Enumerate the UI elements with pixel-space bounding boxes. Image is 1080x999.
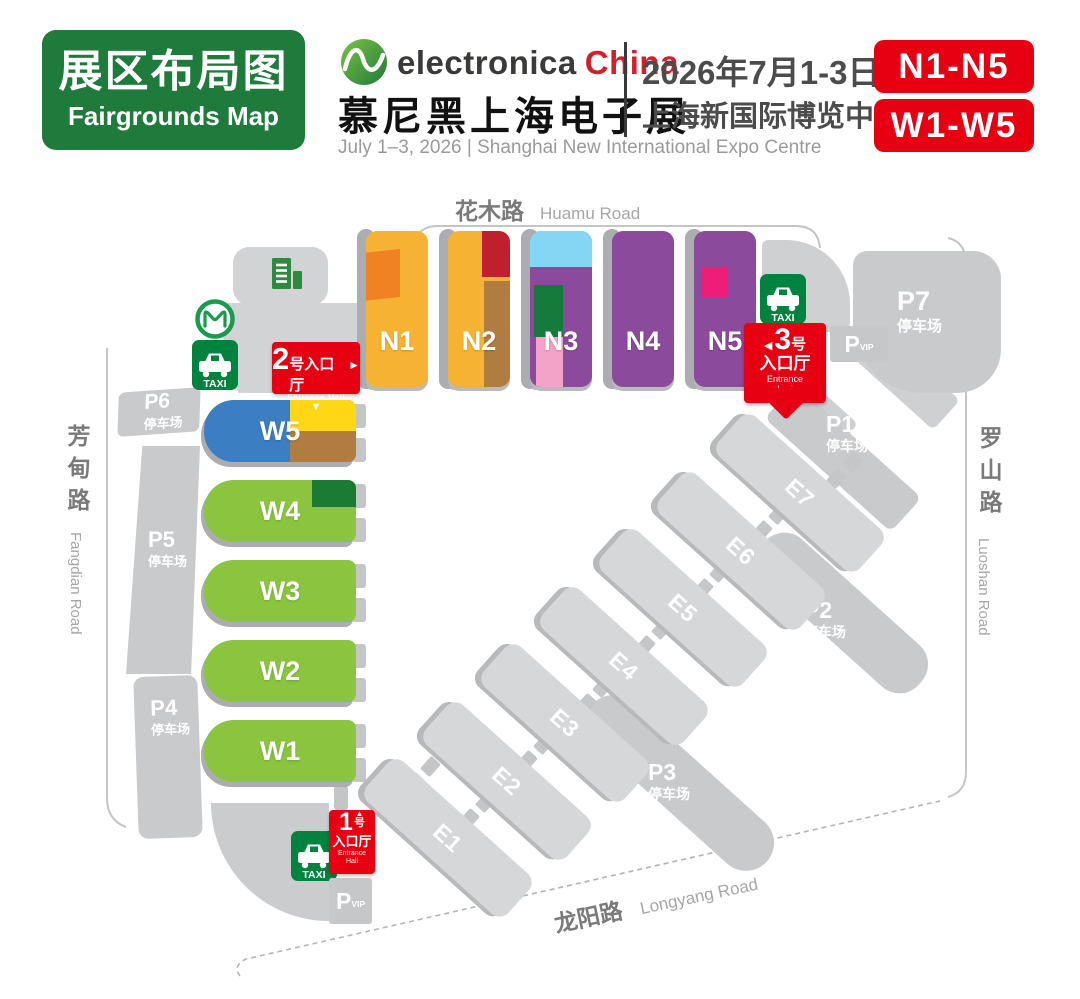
entrance3-hao: 号	[791, 333, 806, 354]
p6-sub: 停车场	[143, 411, 183, 433]
hall-w5-label: W5	[204, 416, 356, 447]
entrance1-en2: Hall	[346, 858, 358, 866]
n1-color-patch	[366, 249, 400, 301]
hall-e1-label: E1	[428, 818, 468, 858]
hall-e2-label: E2	[487, 761, 527, 801]
n3-color-patch-blue	[530, 231, 592, 267]
p5-name: P5	[148, 528, 187, 551]
metro-icon	[194, 298, 236, 340]
hall-n2-label: N2	[448, 326, 510, 357]
hall-w2-label: W2	[204, 656, 356, 687]
entrance1-lobby: 入口厅	[332, 835, 371, 850]
hall-w4-label: W4	[204, 496, 356, 527]
hall-w2: W2	[204, 640, 356, 702]
p4-name: P4	[150, 695, 190, 719]
hall-w5: W5	[204, 400, 356, 462]
fangdian-road-cn: 芳甸路	[60, 424, 94, 520]
hall-e7-label: E7	[780, 473, 820, 513]
entrance2-label: 号入口厅	[289, 353, 346, 395]
fairgrounds-map-page: 展区布局图 Fairgrounds Map electronicaChina 慕…	[0, 0, 1080, 999]
hall-e6-label: E6	[721, 531, 761, 571]
p5-sub: 停车场	[148, 551, 187, 570]
vip-parking-sign: PVIP	[830, 326, 888, 362]
road-label-huamu: 花木路 Huamu Road	[455, 192, 640, 226]
entrance1-hao: 号	[354, 818, 365, 829]
entrance1-en1: Entrance	[338, 850, 366, 858]
p7-sub: 停车场	[897, 315, 942, 336]
hall-n3-label: N3	[530, 326, 592, 357]
taxi-icon: TAXI	[760, 274, 806, 324]
hall-w4: W4	[204, 480, 356, 542]
taxi-icon: TAXI	[192, 340, 238, 390]
p6-name: P6	[144, 389, 184, 414]
arrow-right-icon: ►	[348, 358, 360, 372]
parking-p6: P6 停车场	[117, 387, 200, 437]
fangdian-road-en: Fangdian Road	[67, 532, 84, 635]
hall-n4-label: N4	[612, 326, 674, 357]
hall-w1: W1	[204, 720, 356, 782]
hall-e3-label: E3	[545, 703, 585, 743]
hall-e4-label: E4	[604, 646, 644, 686]
entrance-hall-2-sign: 2 号入口厅 ► Entrance Hall ▼	[272, 342, 360, 394]
entrance3-lobby: 入口厅	[760, 355, 811, 374]
parking-p3-label: P3 停车场	[648, 760, 690, 804]
hall-w1-label: W1	[204, 736, 356, 767]
entrance2-number: 2	[272, 343, 289, 374]
luoshan-road-en: Luoshan Road	[975, 538, 992, 636]
hall-e5-label: E5	[663, 588, 703, 628]
entrance3-number: 3	[774, 325, 791, 355]
parking-p4: P4 停车场	[133, 675, 203, 839]
hall-n1: N1	[366, 231, 428, 387]
hall-n4: N4	[612, 231, 674, 387]
p7-name: P7	[897, 287, 942, 315]
svg-text:TAXI: TAXI	[302, 869, 325, 881]
luoshan-road-cn: 罗山路	[972, 426, 1006, 522]
hall-n3: N3	[530, 231, 592, 387]
arrow-down-icon: ▼	[311, 402, 322, 413]
building-icon	[268, 256, 306, 292]
huamu-road-en: Huamu Road	[540, 204, 640, 224]
svg-text:TAXI: TAXI	[203, 378, 226, 390]
parking-p7: P7 停车场	[853, 251, 1001, 393]
hall-n1-label: N1	[366, 326, 428, 357]
n5-color-patch	[702, 267, 728, 297]
n2-color-patch-red	[482, 231, 510, 277]
p4-sub: 停车场	[151, 718, 191, 738]
connector-tab	[334, 786, 348, 810]
huamu-road-cn: 花木路	[455, 192, 524, 226]
arrow-left-icon: ◀	[764, 339, 772, 352]
hall-w3: W3	[204, 560, 356, 622]
hall-w3-label: W3	[204, 576, 356, 607]
hall-n2: N2	[448, 231, 510, 387]
parking-p1-label: P1 停车场	[826, 412, 868, 456]
vip-parking-sign: PVIP	[329, 878, 372, 924]
entrance1-number: 1	[339, 810, 353, 835]
entrance-hall-1-sign: 1 ▲ 号 入口厅 Entrance Hall	[329, 810, 375, 874]
